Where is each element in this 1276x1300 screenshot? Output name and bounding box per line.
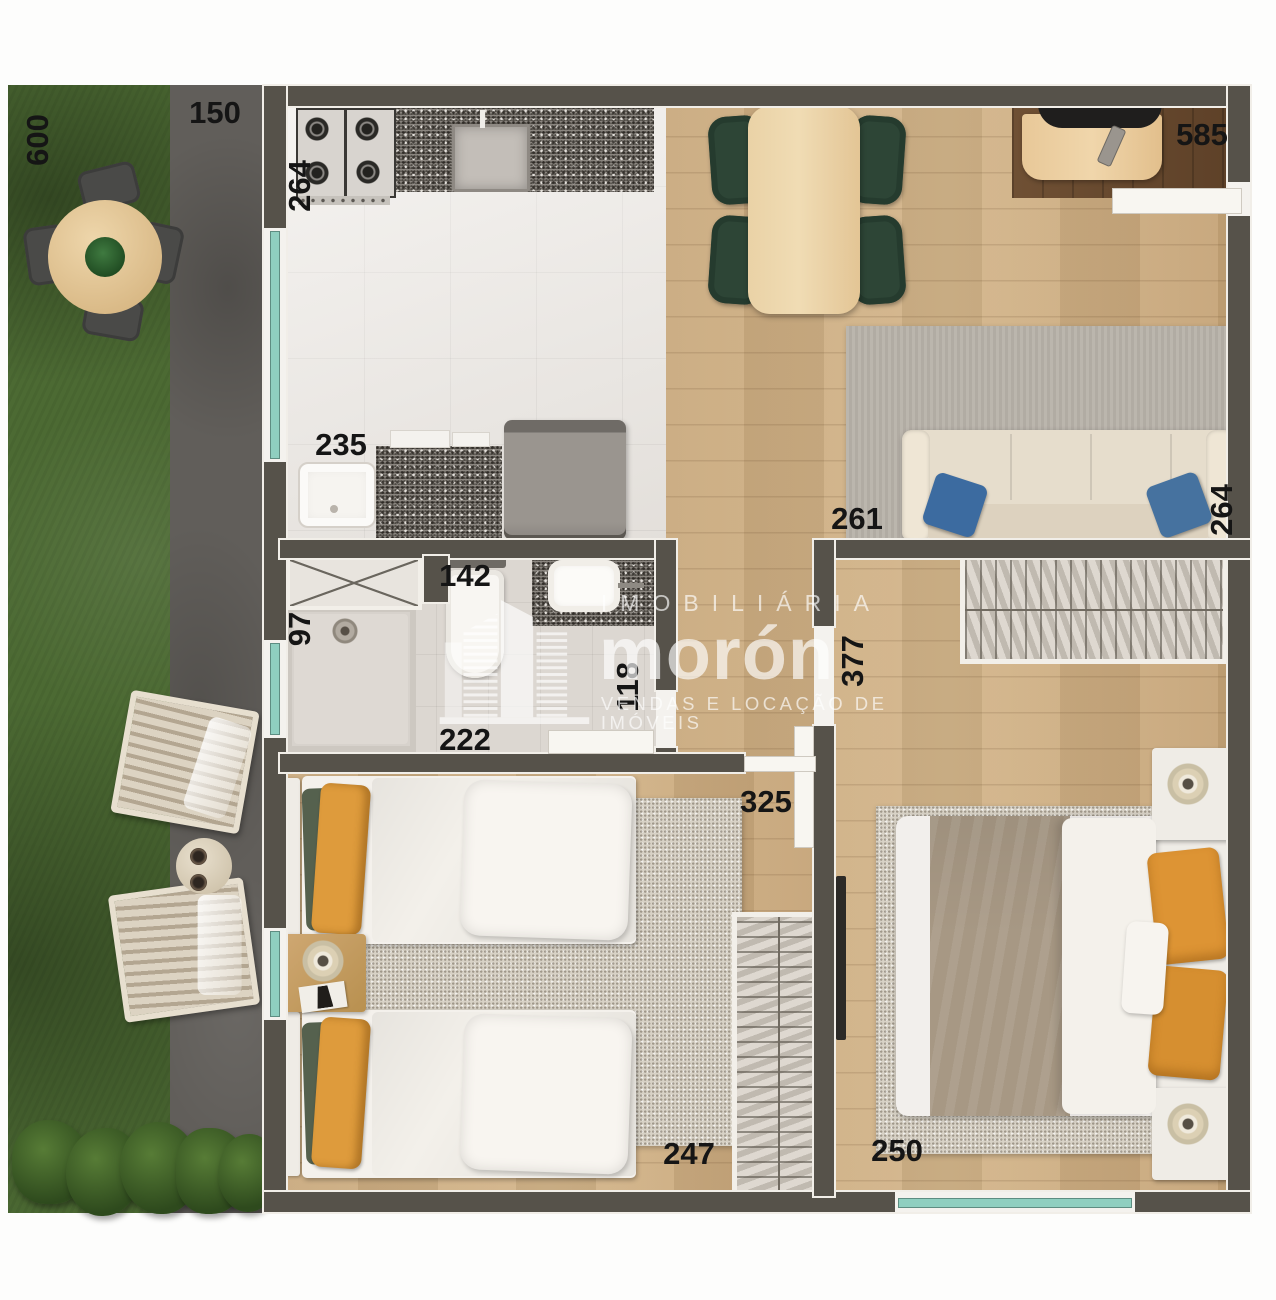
dim-label-hall-width: 325 [740,784,792,820]
wall [814,726,834,1196]
bed-blanket [930,816,1070,1116]
concrete-path [170,85,266,1213]
bedroom2-door-icon [794,726,814,848]
cup-icon [190,848,207,865]
white-pillow-icon [1121,921,1169,1016]
dim-label-shower-width: 97 [282,612,318,646]
dim-label-living-left: 261 [831,501,883,537]
dim-label-living-width: 585 [1176,117,1228,153]
washing-machine-icon [504,420,626,540]
table-plant-icon [85,237,125,277]
bedroom1-wardrobe-icon [732,912,824,1198]
dim-label-living-depth: 264 [1204,484,1240,536]
towel-rack-icon [286,556,422,610]
wall [264,86,1250,106]
dim-label-bath-length: 222 [439,722,491,758]
dim-label-kitchen-width: 264 [282,160,318,212]
tv-icon [836,876,846,1040]
wall [280,754,744,772]
single-bed-icon [284,776,636,944]
dim-label-bedroom1-width: 247 [663,1136,715,1172]
kitchen-faucet-icon [480,110,485,128]
dim-label-bath-width: 142 [439,558,491,594]
laundry-shelf-item [452,432,490,447]
lamp-icon [1166,1102,1210,1146]
lounge-chair-icon [110,690,260,835]
bedroom2-door-opening [814,626,834,726]
floor-plan-canvas: 600 150 264 235 97 142 222 118 585 261 2… [0,0,1276,1300]
dim-label-laundry-width: 235 [315,427,367,463]
bathroom-door-icon [548,730,654,754]
bathroom-faucet-icon [618,583,644,588]
laundry-shelf-item [390,430,450,448]
bathroom-sink-icon [548,560,620,612]
wall [814,540,834,626]
wall [280,540,676,558]
single-bed-icon [284,1010,636,1178]
kitchen-sink-icon [452,124,530,192]
shower-drain-icon [332,618,358,644]
lamp-icon [302,940,344,982]
dining-table-icon [748,106,860,314]
dim-label-path-width: 150 [189,95,241,131]
cup-icon [190,874,207,891]
laundry-counter [376,446,502,540]
bedroom1-door-icon [744,756,816,772]
dim-label-bath-side: 118 [610,662,646,712]
wall [814,540,1250,558]
laundry-tank-icon [298,462,376,528]
dim-label-garden-depth: 600 [20,114,56,166]
window-icon [264,928,286,1020]
lounge-chair-icon [108,877,260,1023]
dim-label-bedroom2-width: 250 [871,1133,923,1169]
lamp-icon [1166,762,1210,806]
dim-label-hall-depth: 377 [835,635,871,687]
wall [656,540,676,690]
window-icon [264,228,286,462]
window-icon [264,640,286,738]
wall [1228,86,1250,1212]
tank-drain-icon [330,505,338,513]
entry-door-icon [1112,188,1242,214]
desk-chair-icon [1038,104,1162,128]
bedroom2-closet-icon [960,554,1228,664]
window-icon [895,1192,1135,1212]
bathroom-door-opening [656,690,676,748]
